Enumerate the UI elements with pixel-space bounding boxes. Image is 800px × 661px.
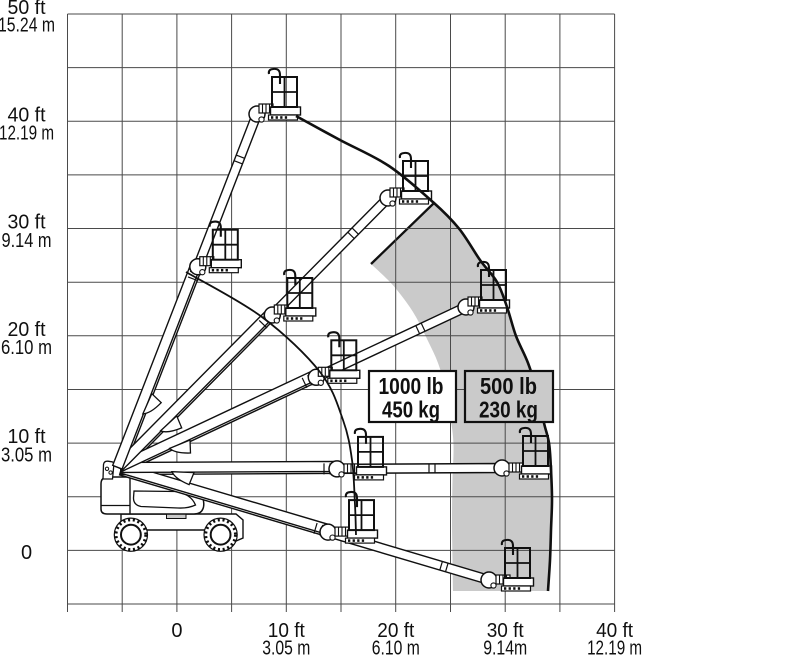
svg-text:3.05 m: 3.05 m [262,638,310,657]
svg-text:9.14m: 9.14m [483,638,527,657]
svg-text:6.10 m: 6.10 m [372,638,420,657]
svg-text:12.19 m: 12.19 m [0,123,54,145]
svg-text:3.05 m: 3.05 m [1,445,52,467]
svg-text:6.10 m: 6.10 m [1,337,52,359]
svg-text:0: 0 [21,542,32,564]
svg-text:9.14 m: 9.14 m [2,230,52,252]
svg-text:500 lb: 500 lb [480,373,537,399]
svg-text:450 kg: 450 kg [382,397,440,423]
svg-text:1000 lb: 1000 lb [379,373,444,399]
svg-text:230 kg: 230 kg [479,397,538,423]
svg-text:15.24 m: 15.24 m [0,15,55,37]
svg-text:0: 0 [171,620,182,642]
svg-text:12.19 m: 12.19 m [587,638,642,657]
